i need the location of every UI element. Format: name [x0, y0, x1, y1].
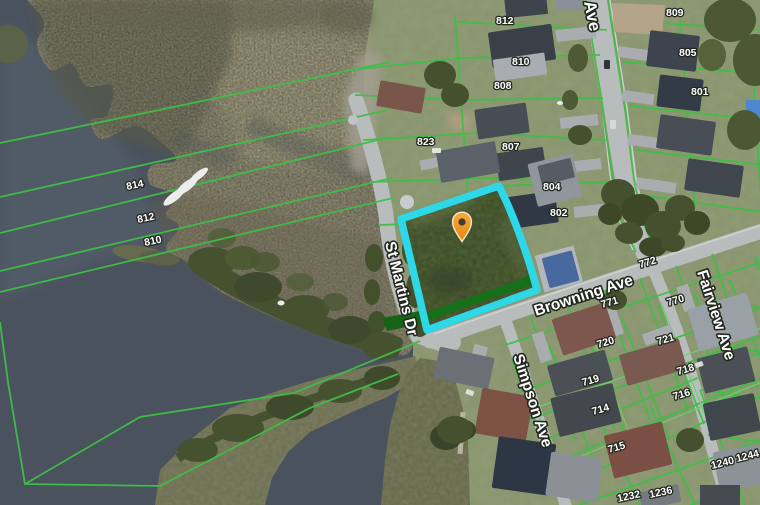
svg-text:802: 802 — [550, 207, 568, 219]
svg-text:823: 823 — [417, 136, 435, 148]
svg-text:808: 808 — [494, 80, 512, 92]
svg-text:805: 805 — [679, 47, 697, 59]
svg-text:804: 804 — [543, 181, 561, 193]
svg-text:810: 810 — [512, 56, 530, 68]
svg-text:809: 809 — [666, 7, 684, 19]
svg-text:812: 812 — [496, 15, 514, 27]
svg-text:801: 801 — [691, 86, 709, 98]
svg-text:807: 807 — [502, 141, 520, 153]
